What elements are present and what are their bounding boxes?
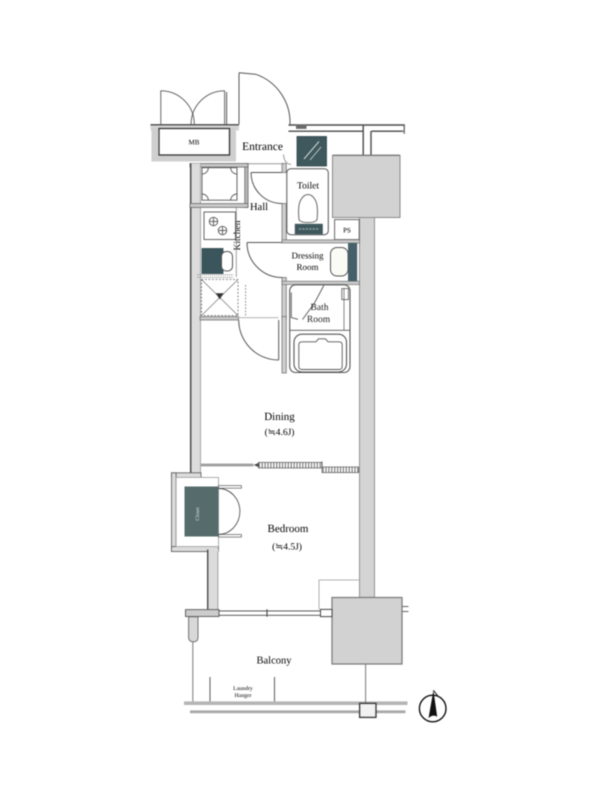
svg-text:Bath: Bath xyxy=(311,303,329,313)
svg-text:Bedroom: Bedroom xyxy=(268,523,309,535)
svg-text:Dining: Dining xyxy=(264,411,295,423)
svg-text:MB: MB xyxy=(189,139,200,147)
svg-text:Hall: Hall xyxy=(250,202,268,213)
svg-text:Balcony: Balcony xyxy=(257,656,293,667)
svg-text:Toilet: Toilet xyxy=(297,182,319,192)
svg-text:PS: PS xyxy=(343,227,351,235)
svg-text:Hanger: Hanger xyxy=(234,693,251,699)
svg-text:Room: Room xyxy=(307,315,331,325)
svg-text:Kitchen: Kitchen xyxy=(233,220,243,250)
svg-text:Dressing: Dressing xyxy=(292,251,324,261)
svg-text:Laundry: Laundry xyxy=(233,685,253,692)
svg-text:Closet: Closet xyxy=(195,507,201,521)
svg-text:Entrance: Entrance xyxy=(242,141,283,153)
svg-text:(≒4.6J): (≒4.6J) xyxy=(265,428,295,438)
svg-text:Room: Room xyxy=(296,262,318,272)
svg-text:(≒4.5J): (≒4.5J) xyxy=(272,543,302,553)
